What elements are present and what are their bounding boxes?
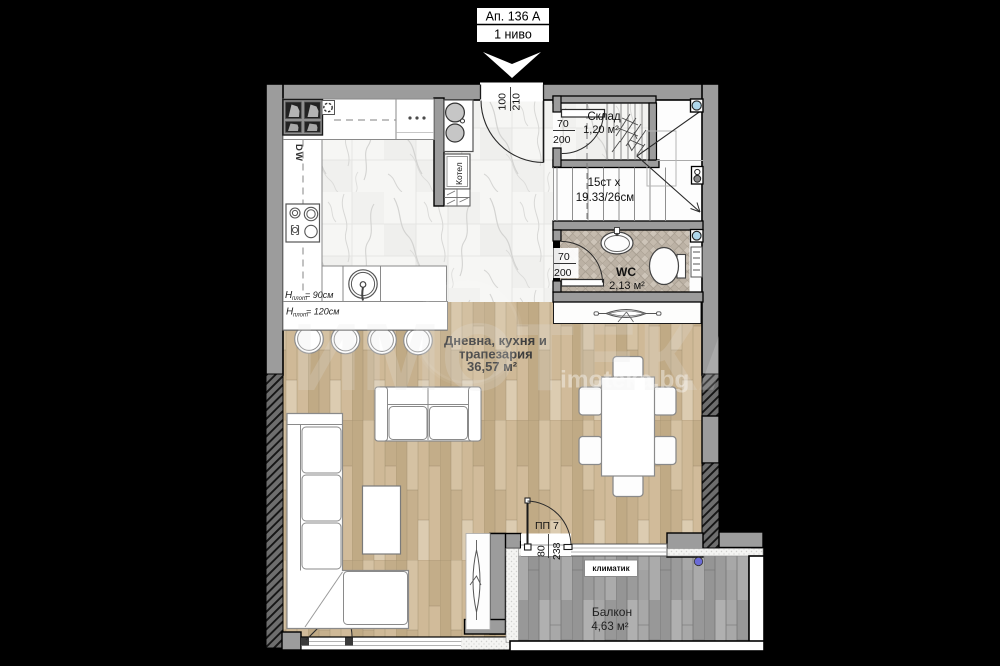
svg-text:15ст х: 15ст х xyxy=(588,177,621,189)
svg-text:ПП 7: ПП 7 xyxy=(535,520,559,532)
svg-text:Ап. 136 А: Ап. 136 А xyxy=(486,10,541,24)
svg-text:200: 200 xyxy=(553,134,571,146)
svg-text:238: 238 xyxy=(551,542,563,560)
svg-text:imoteka.bg: imoteka.bg xyxy=(560,367,689,394)
svg-text:1,20 м²: 1,20 м² xyxy=(583,124,619,136)
svg-text:4,63 м²: 4,63 м² xyxy=(591,621,628,633)
svg-text:100: 100 xyxy=(497,93,509,111)
svg-text:210: 210 xyxy=(511,93,523,111)
svg-text:200: 200 xyxy=(554,267,572,279)
svg-text:DW: DW xyxy=(293,144,304,162)
svg-text:Котел: Котел xyxy=(454,162,464,185)
svg-text:WC: WC xyxy=(616,265,636,279)
svg-text:= 90см: = 90см xyxy=(305,290,333,300)
svg-text:2,13 м²: 2,13 м² xyxy=(609,280,645,292)
svg-text:70: 70 xyxy=(558,251,570,263)
svg-text:климатик: климатик xyxy=(592,564,630,573)
svg-text:80: 80 xyxy=(536,545,548,557)
svg-text:1 ниво: 1 ниво xyxy=(494,28,532,42)
svg-text:70: 70 xyxy=(557,118,569,130)
svg-text:Балкон: Балкон xyxy=(592,605,632,619)
svg-text:ИМОТЕКА: ИМОТЕКА xyxy=(292,304,766,411)
svg-text:Склад: Склад xyxy=(587,111,621,123)
svg-text:19.33/26см: 19.33/26см xyxy=(576,192,635,204)
